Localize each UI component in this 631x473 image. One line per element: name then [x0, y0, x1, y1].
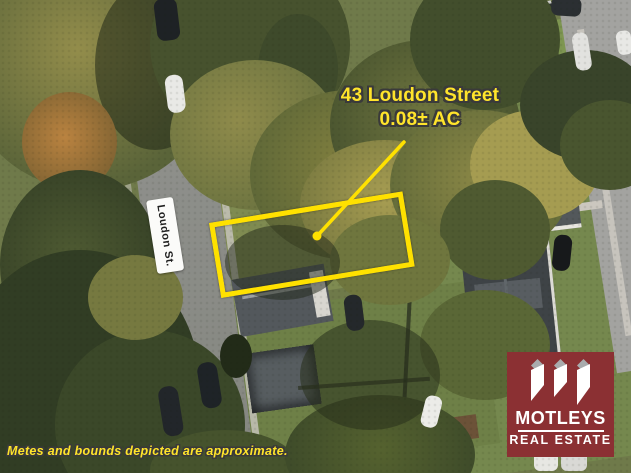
property-callout: 43 Loudon Street 0.08± AC — [320, 84, 520, 132]
street-name-text: Loudon St. — [154, 204, 176, 268]
car — [153, 0, 181, 42]
tree-canopy — [440, 180, 550, 280]
disclaimer-text: Metes and bounds depicted are approximat… — [7, 444, 288, 458]
m-ribbon — [554, 364, 567, 397]
aerial-photo: 43 Loudon Street 0.08± AC Loudon St. Met… — [0, 0, 631, 473]
logo-divider — [518, 430, 604, 432]
m-ribbon — [577, 364, 590, 405]
m-ribbon — [531, 364, 544, 401]
logo-tagline: REAL ESTATE — [509, 434, 611, 447]
car — [551, 0, 582, 17]
palm-tree — [220, 334, 252, 378]
tree-shadow — [300, 320, 440, 430]
motleys-m-icon — [531, 359, 591, 407]
property-acreage-label: 0.08± AC — [320, 108, 520, 132]
property-address-label: 43 Loudon Street — [320, 84, 520, 108]
motleys-logo: MOTLEYS REAL ESTATE — [507, 352, 614, 457]
logo-name: MOTLEYS — [515, 409, 606, 427]
